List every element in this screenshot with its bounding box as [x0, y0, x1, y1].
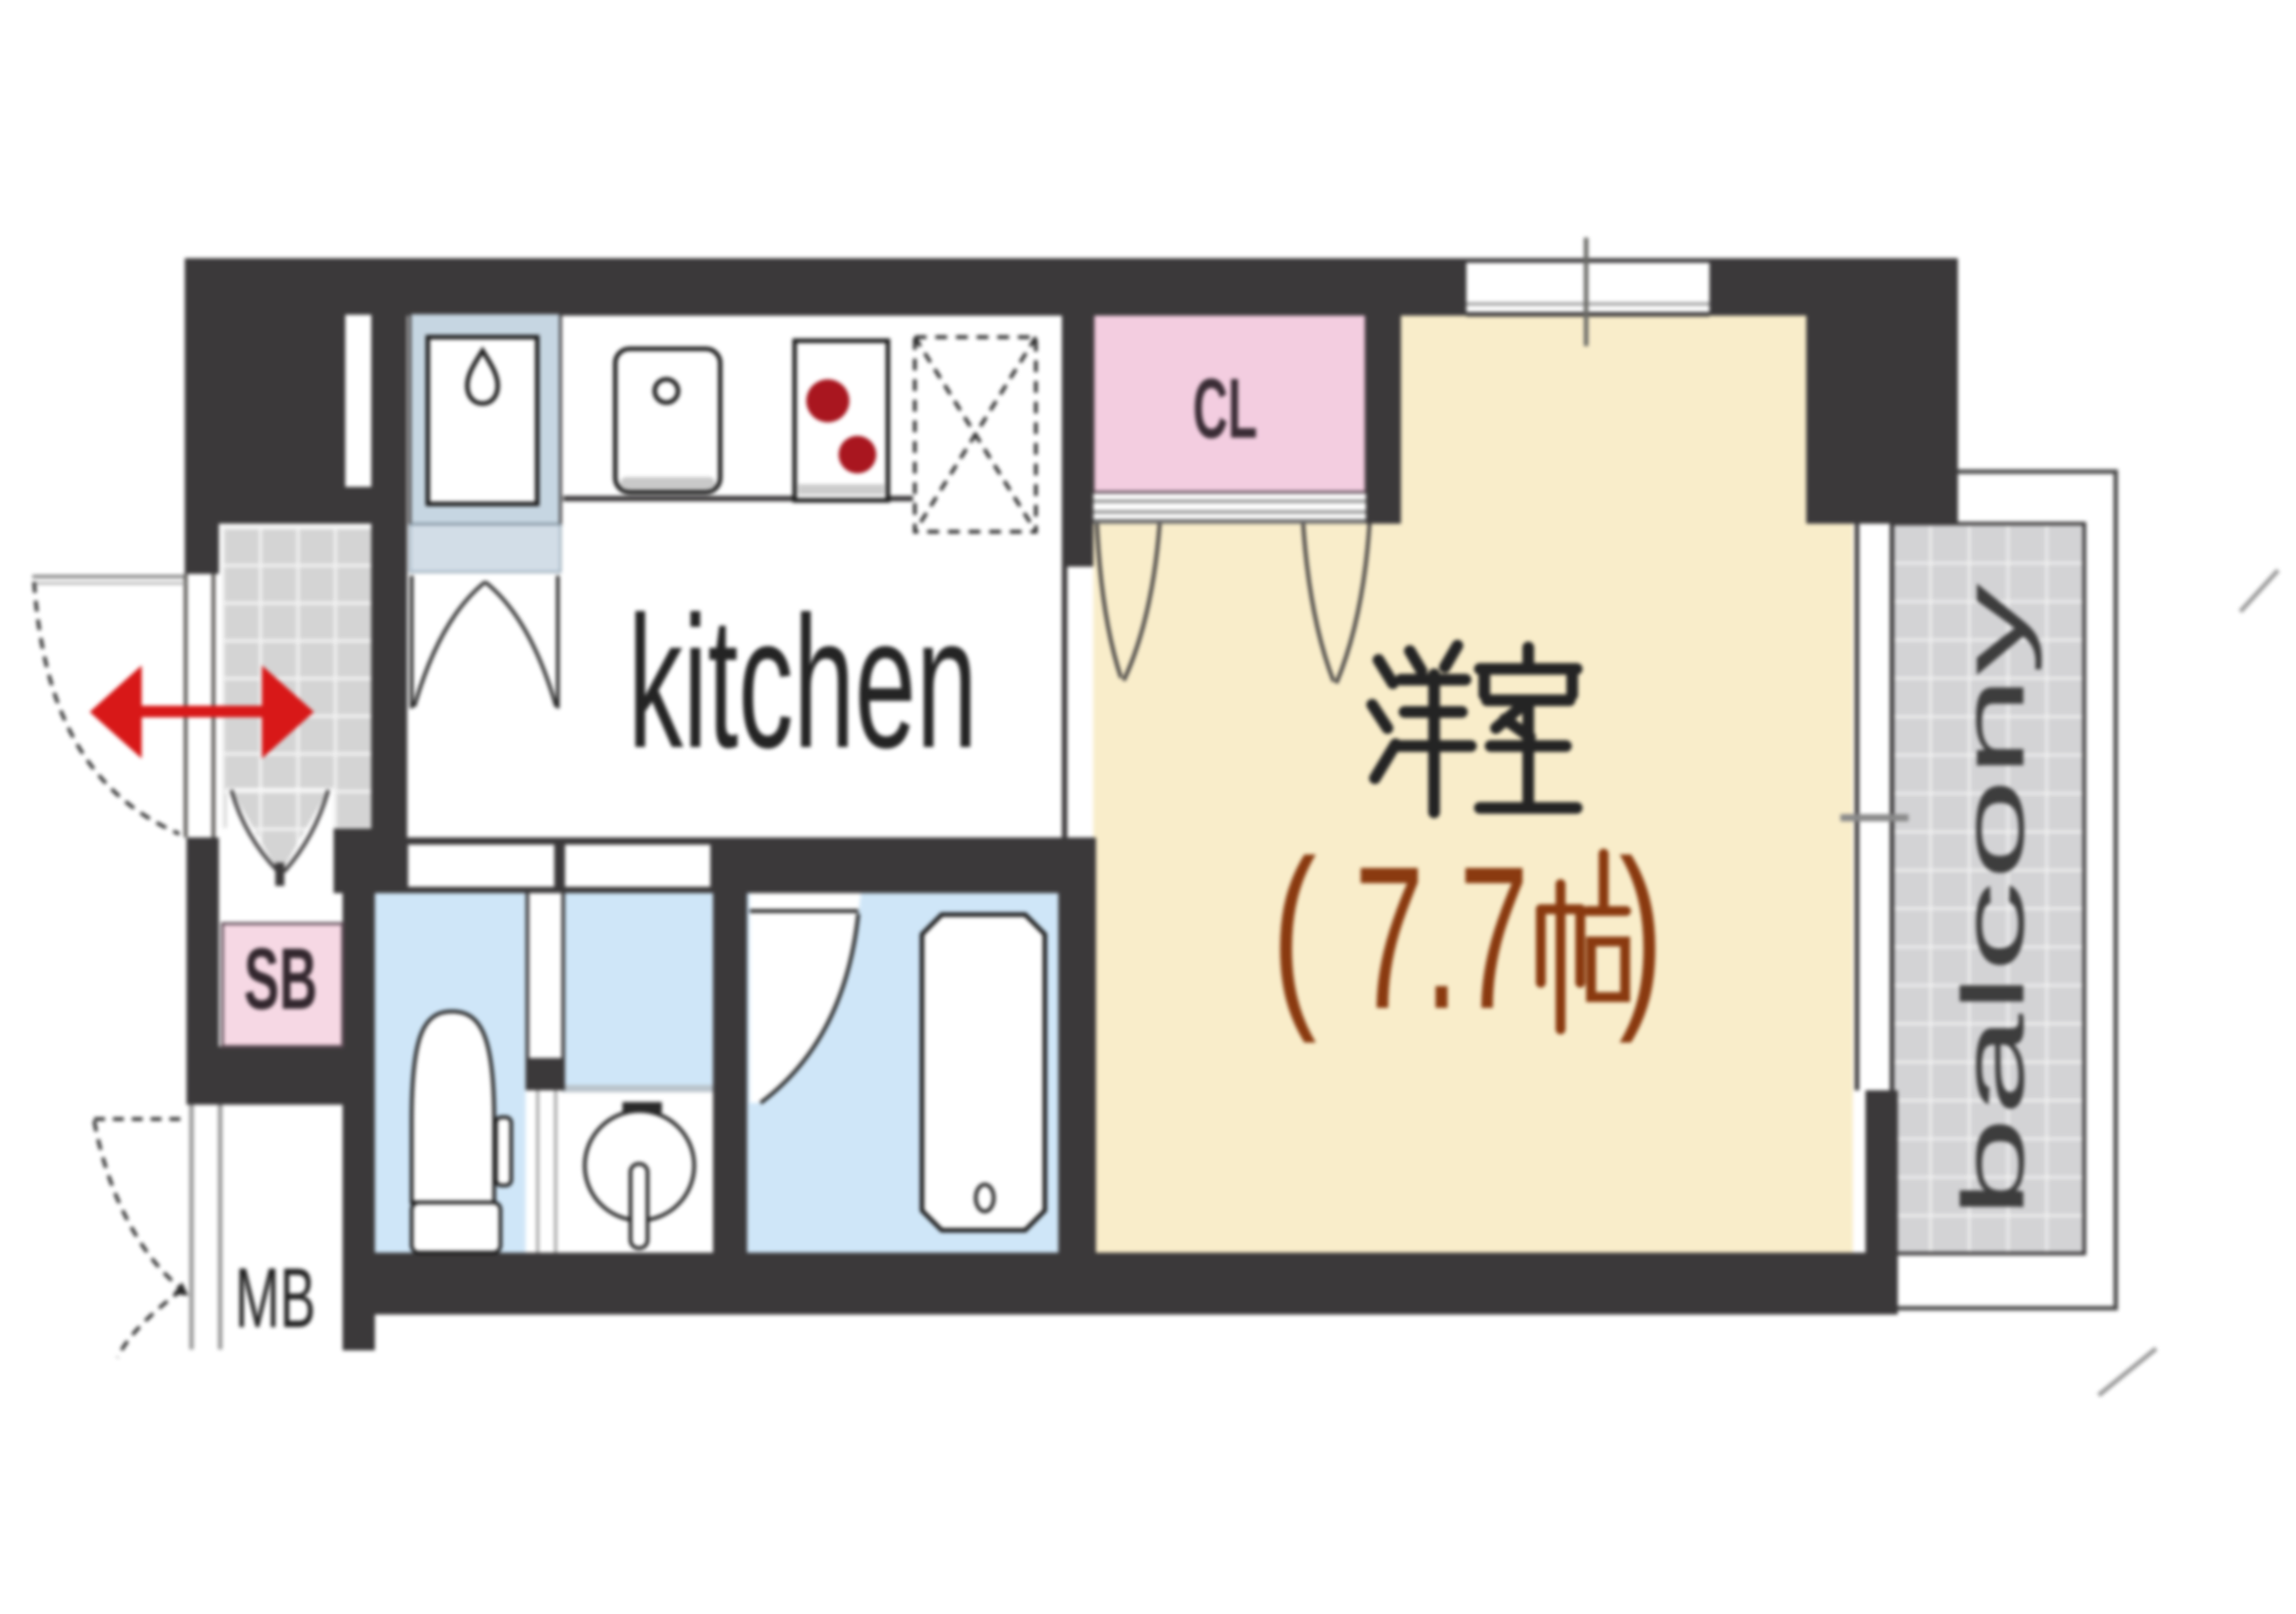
svg-text:CL: CL	[1193, 361, 1257, 456]
svg-text:): )	[1619, 818, 1664, 1044]
svg-text:7.7: 7.7	[1354, 823, 1529, 1051]
svg-text:MB: MB	[235, 1250, 316, 1345]
svg-text:balcony: balcony	[1944, 583, 2042, 1219]
svg-text:(: (	[1272, 818, 1317, 1044]
svg-text:SB: SB	[244, 931, 317, 1028]
svg-text:kitchen: kitchen	[628, 578, 978, 787]
